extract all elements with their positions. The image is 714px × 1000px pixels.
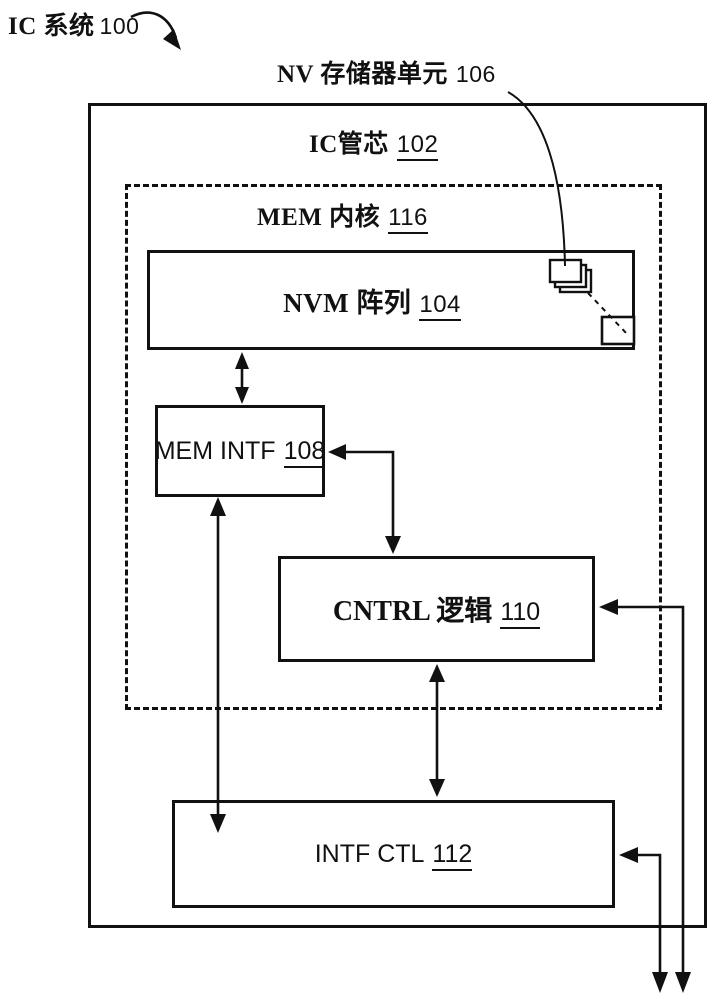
nvm-array-label: NVM 阵列104 — [147, 281, 597, 320]
mem-intf-label: MEM INTF108 — [155, 437, 326, 466]
system-arrowhead — [163, 29, 181, 50]
mem-intf-text: MEM INTF — [155, 437, 276, 465]
intf-ctl-box: INTF CTL112 — [172, 800, 615, 908]
mem-core-text: MEM 内核 — [257, 204, 380, 231]
system-label: IC 系统100 — [8, 6, 139, 42]
die-label: IC管芯102 — [309, 124, 438, 160]
nv-unit-text: NV 存储器单元 — [277, 61, 448, 88]
cntrl-logic-label: CNTRL 逻辑110 — [333, 589, 540, 629]
cntrl-logic-ref: 110 — [500, 598, 540, 629]
mem-intf-ref: 108 — [284, 437, 326, 468]
mem-core-ref: 116 — [388, 204, 428, 234]
intf-ctl-ref: 112 — [432, 840, 472, 871]
nvm-array-text: NVM 阵列 — [283, 288, 411, 318]
nv-unit-ref: 106 — [456, 61, 496, 87]
figure-canvas: MEM INTF108 CNTRL 逻辑110 INTF CTL112 IC 系… — [0, 0, 714, 1000]
system-text: IC 系统 — [8, 13, 95, 40]
mem-intf-box: MEM INTF108 — [155, 405, 325, 497]
mem-core-label: MEM 内核116 — [257, 197, 428, 233]
cntrl-logic-text: CNTRL 逻辑 — [333, 596, 492, 627]
die-text: IC管芯 — [309, 131, 389, 158]
die-ref: 102 — [397, 131, 439, 161]
intf-ctl-text: INTF CTL — [315, 840, 425, 868]
cntrl-logic-box: CNTRL 逻辑110 — [278, 556, 595, 662]
nv-unit-label: NV 存储器单元106 — [277, 54, 496, 90]
nvm-array-ref: 104 — [419, 291, 461, 321]
system-ref: 100 — [100, 13, 140, 39]
intf-ctl-label: INTF CTL112 — [315, 840, 473, 869]
